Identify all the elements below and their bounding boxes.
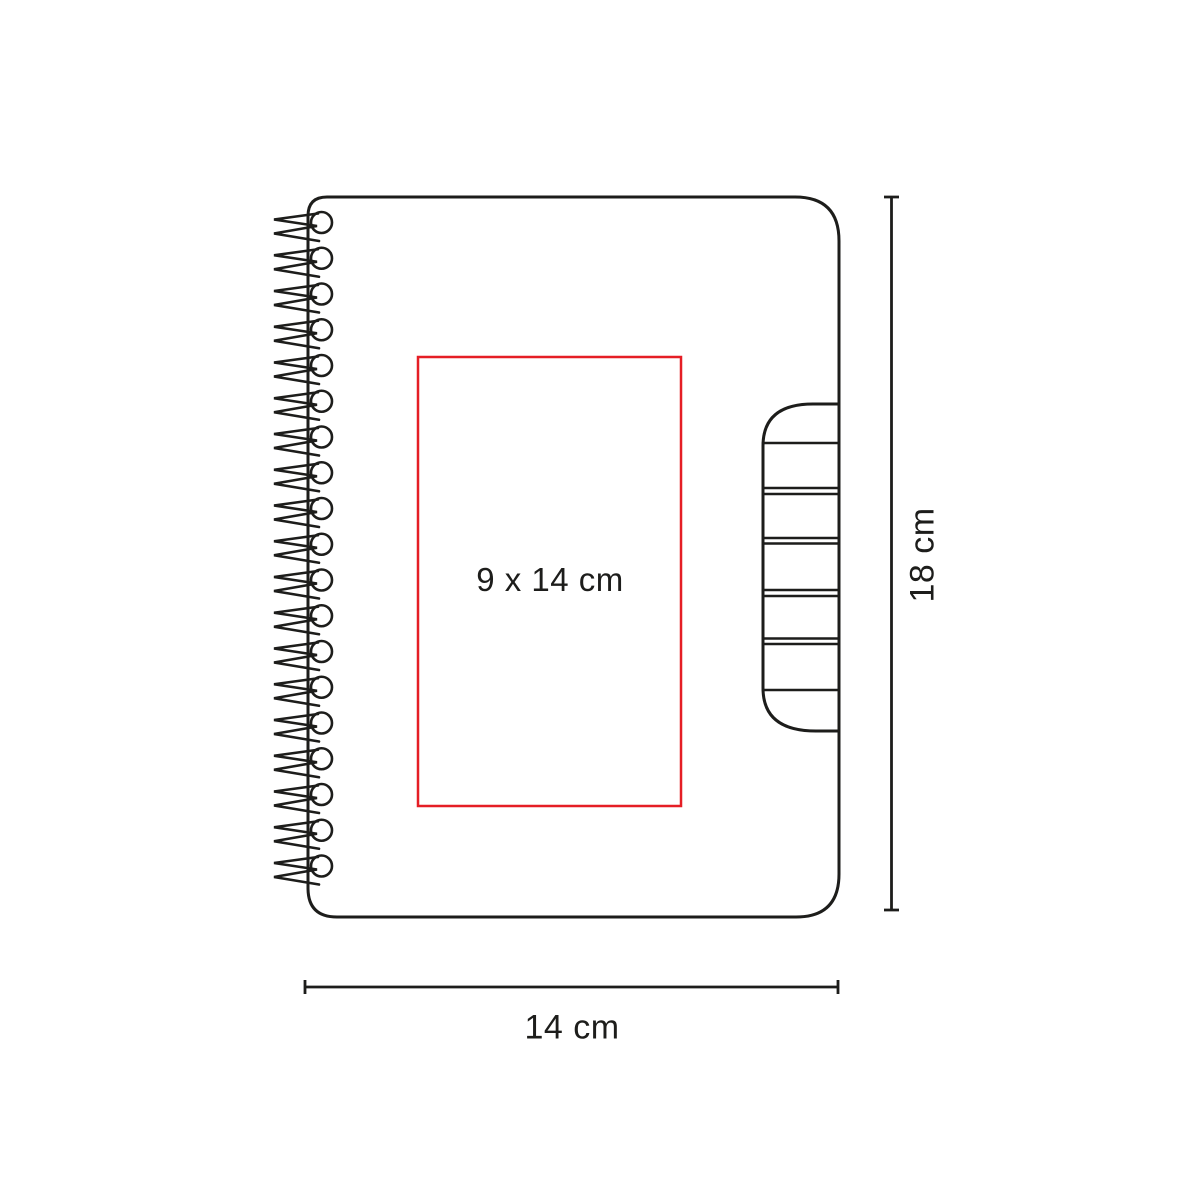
diagram-canvas: 9 x 14 cm 18 cm 14 cm (0, 0, 1182, 1200)
notebook-cover-outline (308, 197, 839, 917)
height-dimension-label: 18 cm (904, 507, 943, 602)
width-dimension-line (305, 980, 838, 994)
width-dimension-label: 14 cm (524, 1009, 619, 1048)
height-dimension-line (884, 197, 899, 910)
side-tab (763, 404, 839, 731)
side-tab-slots (763, 443, 839, 690)
spiral-binding (274, 212, 332, 885)
print-area-label: 9 x 14 cm (476, 561, 624, 599)
